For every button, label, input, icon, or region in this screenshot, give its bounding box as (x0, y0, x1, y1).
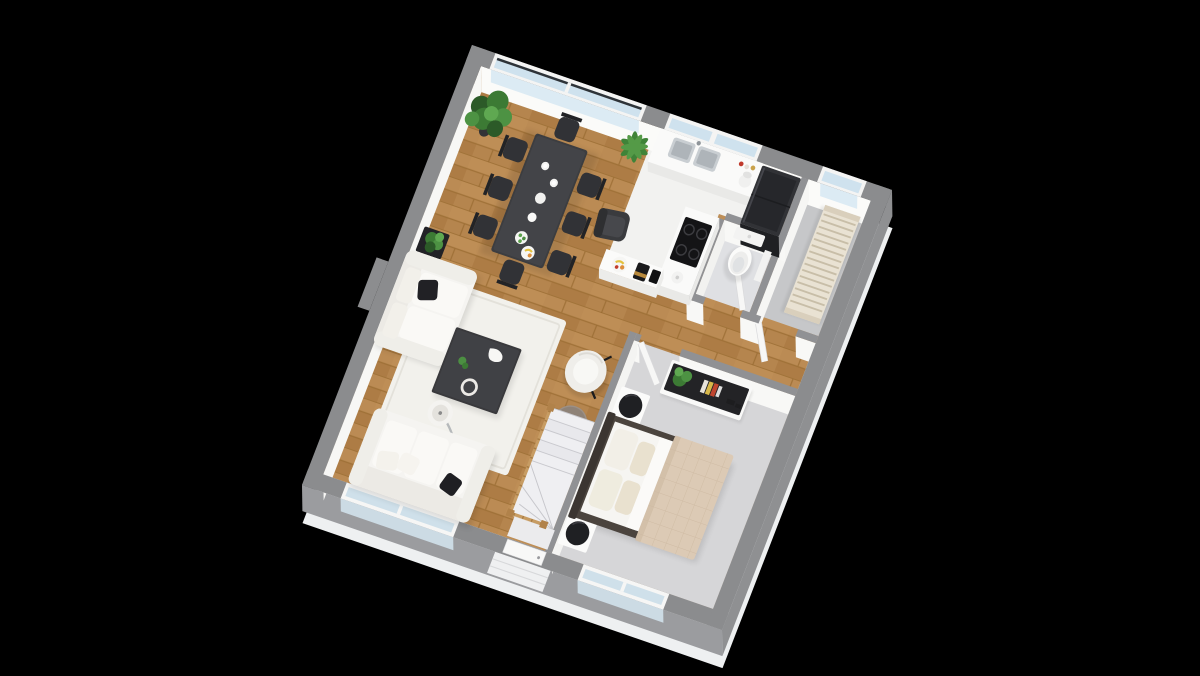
black-pillow (417, 280, 438, 300)
render-canvas (0, 0, 1200, 676)
white-pillow (375, 450, 400, 471)
floor-plan-svg (0, 0, 1200, 676)
